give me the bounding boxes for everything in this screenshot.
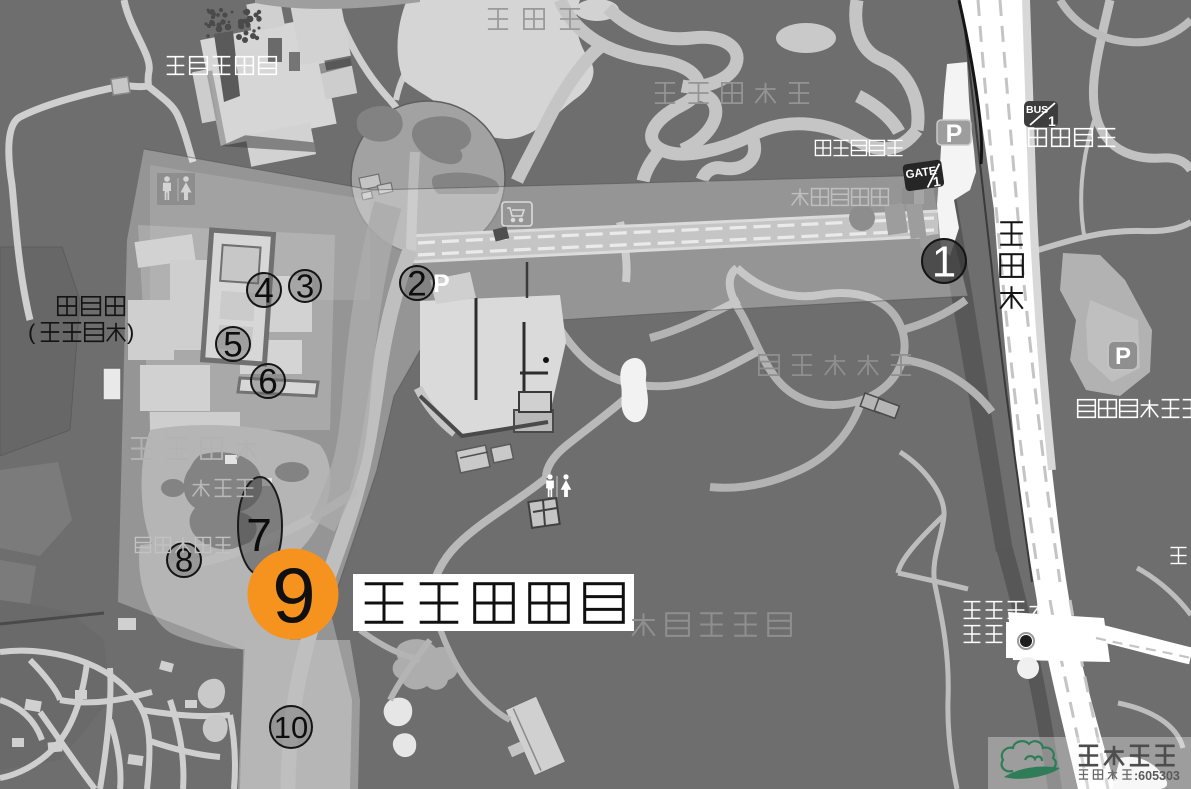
svg-text:10: 10 (274, 710, 308, 745)
svg-text:4: 4 (254, 271, 273, 310)
svg-text:P: P (1115, 343, 1131, 370)
svg-text:1: 1 (1048, 113, 1056, 129)
svg-text:5: 5 (223, 325, 242, 364)
svg-text:P: P (946, 120, 963, 148)
svg-text::605303: :605303 (1134, 769, 1180, 783)
svg-text:(: ( (28, 320, 36, 345)
svg-text:): ) (127, 320, 134, 345)
svg-text:P: P (433, 270, 450, 298)
svg-text:2: 2 (407, 264, 426, 303)
svg-text:8: 8 (175, 542, 193, 579)
svg-text:6: 6 (258, 362, 277, 401)
svg-text:7: 7 (246, 509, 272, 561)
svg-text:3: 3 (296, 268, 314, 305)
svg-text:1: 1 (932, 237, 956, 286)
svg-text:9: 9 (272, 551, 315, 639)
svg-text:BUS: BUS (1026, 104, 1048, 116)
